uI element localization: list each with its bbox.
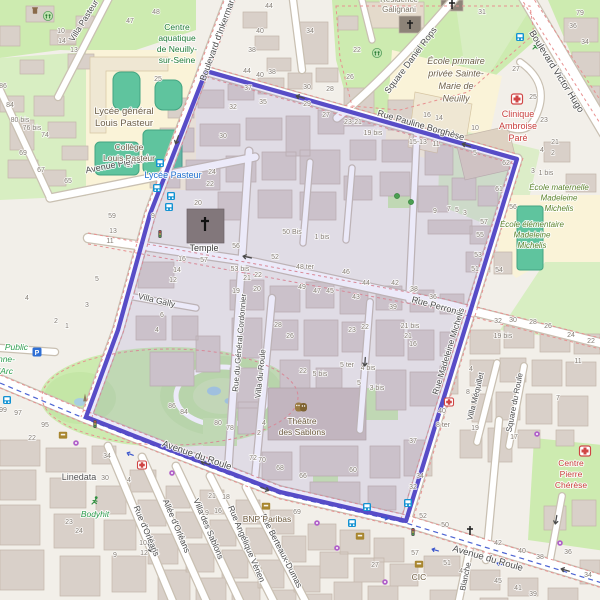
- poi-label: Collège: [115, 142, 144, 152]
- house-number: 23: [540, 117, 548, 124]
- poi-label: Louis Pasteur: [103, 153, 155, 163]
- house-number: 53 bis: [231, 266, 250, 273]
- house-number: 38: [536, 554, 544, 561]
- house-number: 24: [567, 332, 575, 339]
- house-number: 26: [286, 333, 294, 340]
- house-number: 28: [326, 86, 334, 93]
- house-number: 46: [342, 269, 350, 276]
- house-number: 39: [389, 304, 397, 311]
- house-number: 5 ter: [340, 362, 355, 369]
- house-number: 59: [108, 213, 116, 220]
- house-number: 5: [95, 276, 99, 283]
- house-number: 28: [274, 322, 282, 329]
- house-number: 34: [306, 28, 314, 35]
- house-number: 22: [299, 368, 307, 375]
- house-number: 24: [208, 169, 216, 176]
- house-number: 4: [262, 420, 266, 427]
- house-number: 62: [502, 160, 510, 167]
- house-number: 4: [469, 366, 473, 373]
- house-number: 30: [101, 475, 109, 482]
- house-number: 47: [313, 288, 321, 295]
- house-number: 74: [41, 132, 49, 139]
- house-number: 22: [206, 181, 214, 188]
- poi-label: Chérèse: [555, 480, 587, 490]
- house-number: 5: [473, 150, 477, 157]
- house-number: 14: [58, 38, 66, 45]
- house-number: 2: [54, 318, 58, 325]
- house-number: 20: [194, 200, 202, 207]
- house-number: 1: [65, 323, 69, 330]
- house-number: 34: [416, 473, 424, 480]
- poi-label: Lycée général: [94, 106, 153, 117]
- pool-2: [155, 80, 182, 110]
- house-number: 79: [576, 10, 584, 17]
- house-number: 42: [391, 280, 399, 287]
- house-number: 3: [531, 168, 535, 175]
- house-number: 86: [0, 83, 7, 90]
- house-number: 27: [322, 112, 330, 119]
- house-number: 21 bis: [401, 323, 420, 330]
- house-number: 34: [103, 453, 111, 460]
- house-number: 43: [352, 294, 360, 301]
- poi-label: Clinique: [502, 109, 535, 119]
- house-number: 47: [126, 18, 134, 25]
- house-number: 51: [443, 560, 451, 567]
- playground-icon: [372, 48, 381, 57]
- house-number: 16: [214, 508, 222, 515]
- house-number: 16: [178, 256, 186, 263]
- house-number: 4: [540, 147, 544, 154]
- house-number: 84: [6, 102, 14, 109]
- bank-icon: [415, 561, 423, 568]
- house-number: 3: [85, 302, 89, 309]
- poi-label: École élémentaire: [500, 220, 565, 229]
- house-number: 26: [544, 323, 552, 330]
- house-number: 50: [441, 522, 449, 529]
- house-number: 7: [556, 395, 560, 402]
- house-number: 12: [140, 550, 148, 557]
- house-number: 65: [64, 178, 72, 185]
- house-number: 48: [152, 9, 160, 16]
- house-number: 50 Bis: [282, 229, 302, 236]
- house-number: 9: [433, 208, 437, 215]
- house-number: 9: [113, 552, 117, 559]
- house-number: 16: [423, 112, 431, 119]
- poi-label: anne-: [0, 354, 15, 364]
- poi-label: Public: [5, 342, 29, 352]
- house-number: 5: [455, 207, 459, 214]
- house-number: 53: [474, 252, 482, 259]
- house-number: 69: [293, 509, 301, 516]
- house-number: 45: [326, 288, 334, 295]
- house-number: 23-21: [344, 119, 362, 126]
- house-number: 95: [41, 422, 49, 429]
- map-viewport[interactable]: 101413484725868480 bis76 bis746967651794…: [0, 0, 600, 600]
- hospital-icon: [580, 446, 591, 456]
- house-number: 52: [271, 254, 279, 261]
- house-number: 40: [438, 408, 446, 415]
- traffic-icon: [93, 420, 96, 428]
- traffic-icon: [158, 230, 161, 238]
- house-number: 70: [258, 457, 266, 464]
- house-number: 10: [57, 28, 65, 35]
- house-number: 32: [229, 104, 237, 111]
- house-number: 15-13: [409, 139, 427, 146]
- house-number: 49: [298, 284, 306, 291]
- bus-icon: [156, 159, 164, 167]
- house-number: 30: [219, 133, 227, 140]
- house-number: 84: [180, 409, 188, 416]
- house-number: 2: [551, 150, 555, 157]
- house-number: 8: [466, 389, 470, 396]
- house-number: 44: [243, 68, 251, 75]
- house-number: 14: [435, 115, 443, 122]
- house-number: 45: [494, 578, 502, 585]
- house-number: 44: [362, 280, 370, 287]
- house-number: 13: [109, 228, 117, 235]
- house-number: 18: [222, 494, 230, 501]
- poi-label: Louis Pasteur: [95, 118, 153, 129]
- playground-icon: [43, 11, 52, 20]
- house-number: 22: [361, 324, 369, 331]
- house-number: 76 bis: [23, 125, 42, 132]
- parking-glyph: P: [35, 350, 40, 357]
- house-number: 1 bis: [315, 234, 330, 241]
- house-number: 40: [256, 28, 264, 35]
- house-number: 20: [253, 286, 261, 293]
- house-number: 21: [404, 333, 412, 340]
- house-number: 24: [75, 528, 83, 535]
- house-number: 56: [509, 204, 517, 211]
- house-number: 2: [257, 430, 261, 437]
- house-number: 30: [303, 84, 311, 91]
- bus-icon: [516, 33, 524, 41]
- theater-icon: [295, 403, 307, 412]
- house-number: 3 bis: [370, 385, 385, 392]
- house-number: 14: [173, 267, 181, 274]
- house-number: 10: [471, 125, 479, 132]
- house-number: 39: [529, 591, 537, 598]
- shop-icon: [334, 545, 340, 551]
- poi-label: aquatique: [158, 33, 196, 43]
- house-number: 23: [348, 327, 356, 334]
- house-number: 34: [584, 572, 592, 579]
- house-number: 25: [529, 94, 537, 101]
- house-number: 66: [299, 473, 307, 480]
- house-number: 1 bis: [539, 170, 554, 177]
- house-number: 27: [371, 562, 379, 569]
- poi-label: privée Sainte-: [427, 69, 484, 79]
- traffic-icon: [411, 528, 414, 536]
- bank-icon: [262, 503, 270, 510]
- house-number: 4: [155, 327, 159, 334]
- house-number: 38: [410, 286, 418, 293]
- poi-label: 'Arc: [0, 366, 14, 376]
- house-number: 21: [208, 493, 216, 500]
- house-number: 7: [447, 206, 451, 213]
- house-number: 19 bis: [494, 333, 513, 340]
- house-number: 8 ter: [436, 422, 451, 429]
- bus-icon: [363, 503, 371, 511]
- bank-icon: [59, 432, 67, 439]
- shop-icon: [557, 540, 563, 546]
- poi-label: Galignani: [382, 5, 416, 14]
- poi-label: Théâtre: [287, 416, 317, 426]
- house-number: 35: [259, 99, 267, 106]
- poi-label: Madeleine: [514, 231, 551, 240]
- poi-label: Madeleine: [541, 194, 578, 203]
- shop-icon: [314, 520, 320, 526]
- house-number: 13: [70, 47, 78, 54]
- house-number: 22: [28, 435, 36, 442]
- poi-label: Bodyhit: [81, 509, 110, 519]
- house-number: 55: [476, 232, 484, 239]
- bus-icon: [348, 519, 356, 527]
- pharmacy-icon: [138, 461, 147, 469]
- poi-label: Paré: [508, 133, 527, 143]
- house-number: 22: [353, 47, 361, 54]
- shop-icon: [169, 470, 175, 476]
- house-number: 23: [65, 519, 73, 526]
- waste-icon: [32, 7, 38, 14]
- poi-label: Résidence: [380, 0, 418, 4]
- house-number: 56: [232, 243, 240, 250]
- poi-label: Marie de: [438, 81, 473, 91]
- house-number: 21: [551, 139, 559, 146]
- house-number: 6: [160, 312, 164, 319]
- house-number: 60: [349, 467, 357, 474]
- bank-icon: [356, 533, 364, 540]
- house-number: 36: [564, 549, 572, 556]
- house-number: 99: [0, 407, 7, 414]
- hospital-icon: [512, 94, 523, 104]
- map-canvas[interactable]: 101413484725868480 bis76 bis746967651794…: [0, 0, 600, 600]
- house-number: 11: [106, 238, 113, 245]
- house-number: 11: [574, 358, 581, 365]
- poi-label: Neuilly: [442, 94, 470, 104]
- house-number: 34: [581, 39, 589, 46]
- poi-label: Ambroise: [499, 121, 537, 131]
- pharmacy-icon: [445, 398, 454, 406]
- poi-label: Temple: [189, 243, 218, 253]
- poi-label: Pierre: [560, 469, 583, 479]
- house-number: 26: [346, 74, 354, 81]
- poi-label: de Neuilly-: [157, 44, 197, 54]
- house-number: 22: [587, 338, 595, 345]
- house-number: 25: [154, 76, 162, 83]
- poi-label: Linedata: [62, 472, 97, 482]
- house-number: 72: [249, 455, 257, 462]
- house-number: 42: [494, 540, 502, 547]
- house-number: 41: [514, 585, 522, 592]
- transit-stop-label: Lycée Pasteur: [144, 170, 201, 180]
- house-number: 3: [463, 210, 467, 217]
- house-number: 31: [478, 9, 486, 16]
- house-number: 80: [214, 420, 222, 427]
- poi-label: École maternelle: [529, 183, 589, 192]
- house-number: 21: [243, 275, 251, 282]
- house-number: 12: [169, 277, 177, 284]
- house-number: 16: [409, 341, 417, 348]
- house-number: 30: [509, 317, 517, 324]
- house-number: 69: [19, 150, 27, 157]
- shop-icon: [73, 440, 79, 446]
- poi-label: BNP Paribas: [243, 514, 292, 524]
- house-number: 57: [480, 219, 488, 226]
- poi-label: Centre: [558, 458, 584, 468]
- house-number: 80 bis: [11, 117, 30, 124]
- house-number: 57: [411, 550, 419, 557]
- house-number: 32: [494, 318, 502, 325]
- house-number: 32: [409, 484, 417, 491]
- house-number: 67: [37, 167, 45, 174]
- house-number: 61: [495, 186, 503, 193]
- house-number: 4: [127, 477, 131, 484]
- house-number: 11: [432, 141, 439, 148]
- poi-label: CIC: [412, 572, 427, 582]
- poi-label: École primaire: [427, 56, 485, 66]
- poi-label: Michelis: [545, 204, 574, 213]
- bus-icon: [153, 184, 161, 192]
- poi-label: des Sablons: [279, 427, 326, 437]
- house-number: 5: [357, 380, 361, 387]
- house-number: 38: [268, 69, 276, 76]
- bus-icon: [167, 192, 175, 200]
- house-number: 68: [276, 465, 284, 472]
- house-number: 37: [244, 85, 252, 92]
- bus-icon: [165, 203, 173, 211]
- house-number: 51: [471, 266, 479, 273]
- house-number: 36: [569, 23, 577, 30]
- house-number: 4 bis: [361, 365, 376, 372]
- shop-icon: [534, 431, 540, 437]
- pool-1: [113, 72, 140, 110]
- house-number: 22: [254, 272, 262, 279]
- house-number: 9: [151, 213, 155, 220]
- house-number: 4: [25, 295, 29, 302]
- house-number: 52: [419, 513, 427, 520]
- house-number: 78: [226, 425, 234, 432]
- poi-label: sur-Seine: [159, 55, 196, 65]
- house-number: 54: [495, 267, 503, 274]
- tree-icon: [408, 199, 413, 204]
- house-number: 5 bis: [313, 371, 328, 378]
- house-number: 40: [518, 548, 526, 555]
- house-number: 19: [471, 425, 479, 432]
- house-number: 27: [512, 66, 520, 73]
- poi-label: Centre: [164, 22, 190, 32]
- house-number: 86: [168, 403, 176, 410]
- house-number: 29: [303, 101, 311, 108]
- poi-label: Michelis: [518, 241, 547, 250]
- house-number: 97: [14, 410, 22, 417]
- house-number: 48 ter: [296, 264, 315, 271]
- house-number: 28: [529, 319, 537, 326]
- bus-icon: [404, 499, 412, 507]
- house-number: 44: [265, 3, 273, 10]
- bus-icon: [3, 396, 11, 404]
- shop-icon: [382, 579, 388, 585]
- house-number: 40: [256, 72, 264, 79]
- parking-icon: P: [33, 348, 42, 357]
- house-number: 37: [409, 438, 417, 445]
- tree-icon: [394, 193, 399, 198]
- house-number: 17: [510, 434, 518, 441]
- house-number: 19 bis: [364, 130, 383, 137]
- house-number: 57: [200, 257, 208, 264]
- house-number: 38: [248, 47, 256, 54]
